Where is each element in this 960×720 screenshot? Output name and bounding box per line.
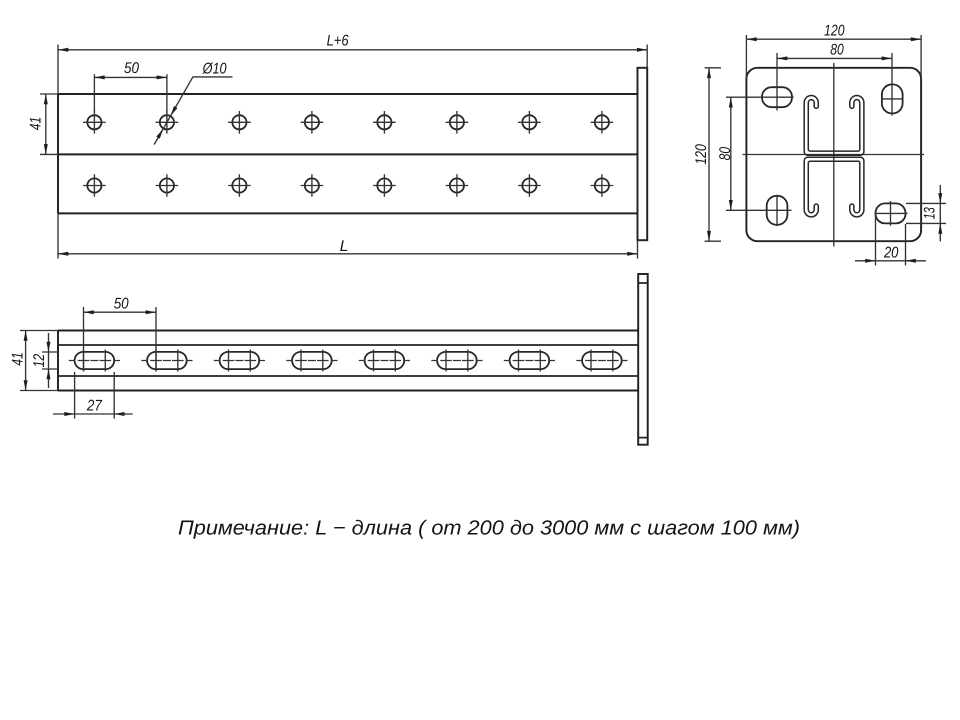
svg-text:L+6: L+6 — [327, 32, 349, 49]
svg-text:L: L — [340, 238, 349, 255]
svg-text:13: 13 — [922, 207, 939, 219]
svg-text:Примечание: L − длина ( от 200: Примечание: L − длина ( от 200 до 3000 м… — [178, 518, 800, 540]
svg-text:80: 80 — [717, 147, 734, 161]
svg-text:50: 50 — [124, 60, 139, 77]
svg-text:20: 20 — [883, 245, 899, 262]
svg-text:50: 50 — [114, 296, 129, 313]
svg-text:41: 41 — [27, 117, 44, 131]
svg-text:120: 120 — [824, 23, 845, 40]
svg-text:27: 27 — [86, 398, 103, 415]
svg-text:41: 41 — [10, 352, 27, 366]
svg-text:12: 12 — [31, 354, 48, 368]
svg-text:80: 80 — [830, 42, 844, 59]
svg-text:Ø10: Ø10 — [202, 61, 227, 78]
svg-text:120: 120 — [693, 144, 710, 165]
